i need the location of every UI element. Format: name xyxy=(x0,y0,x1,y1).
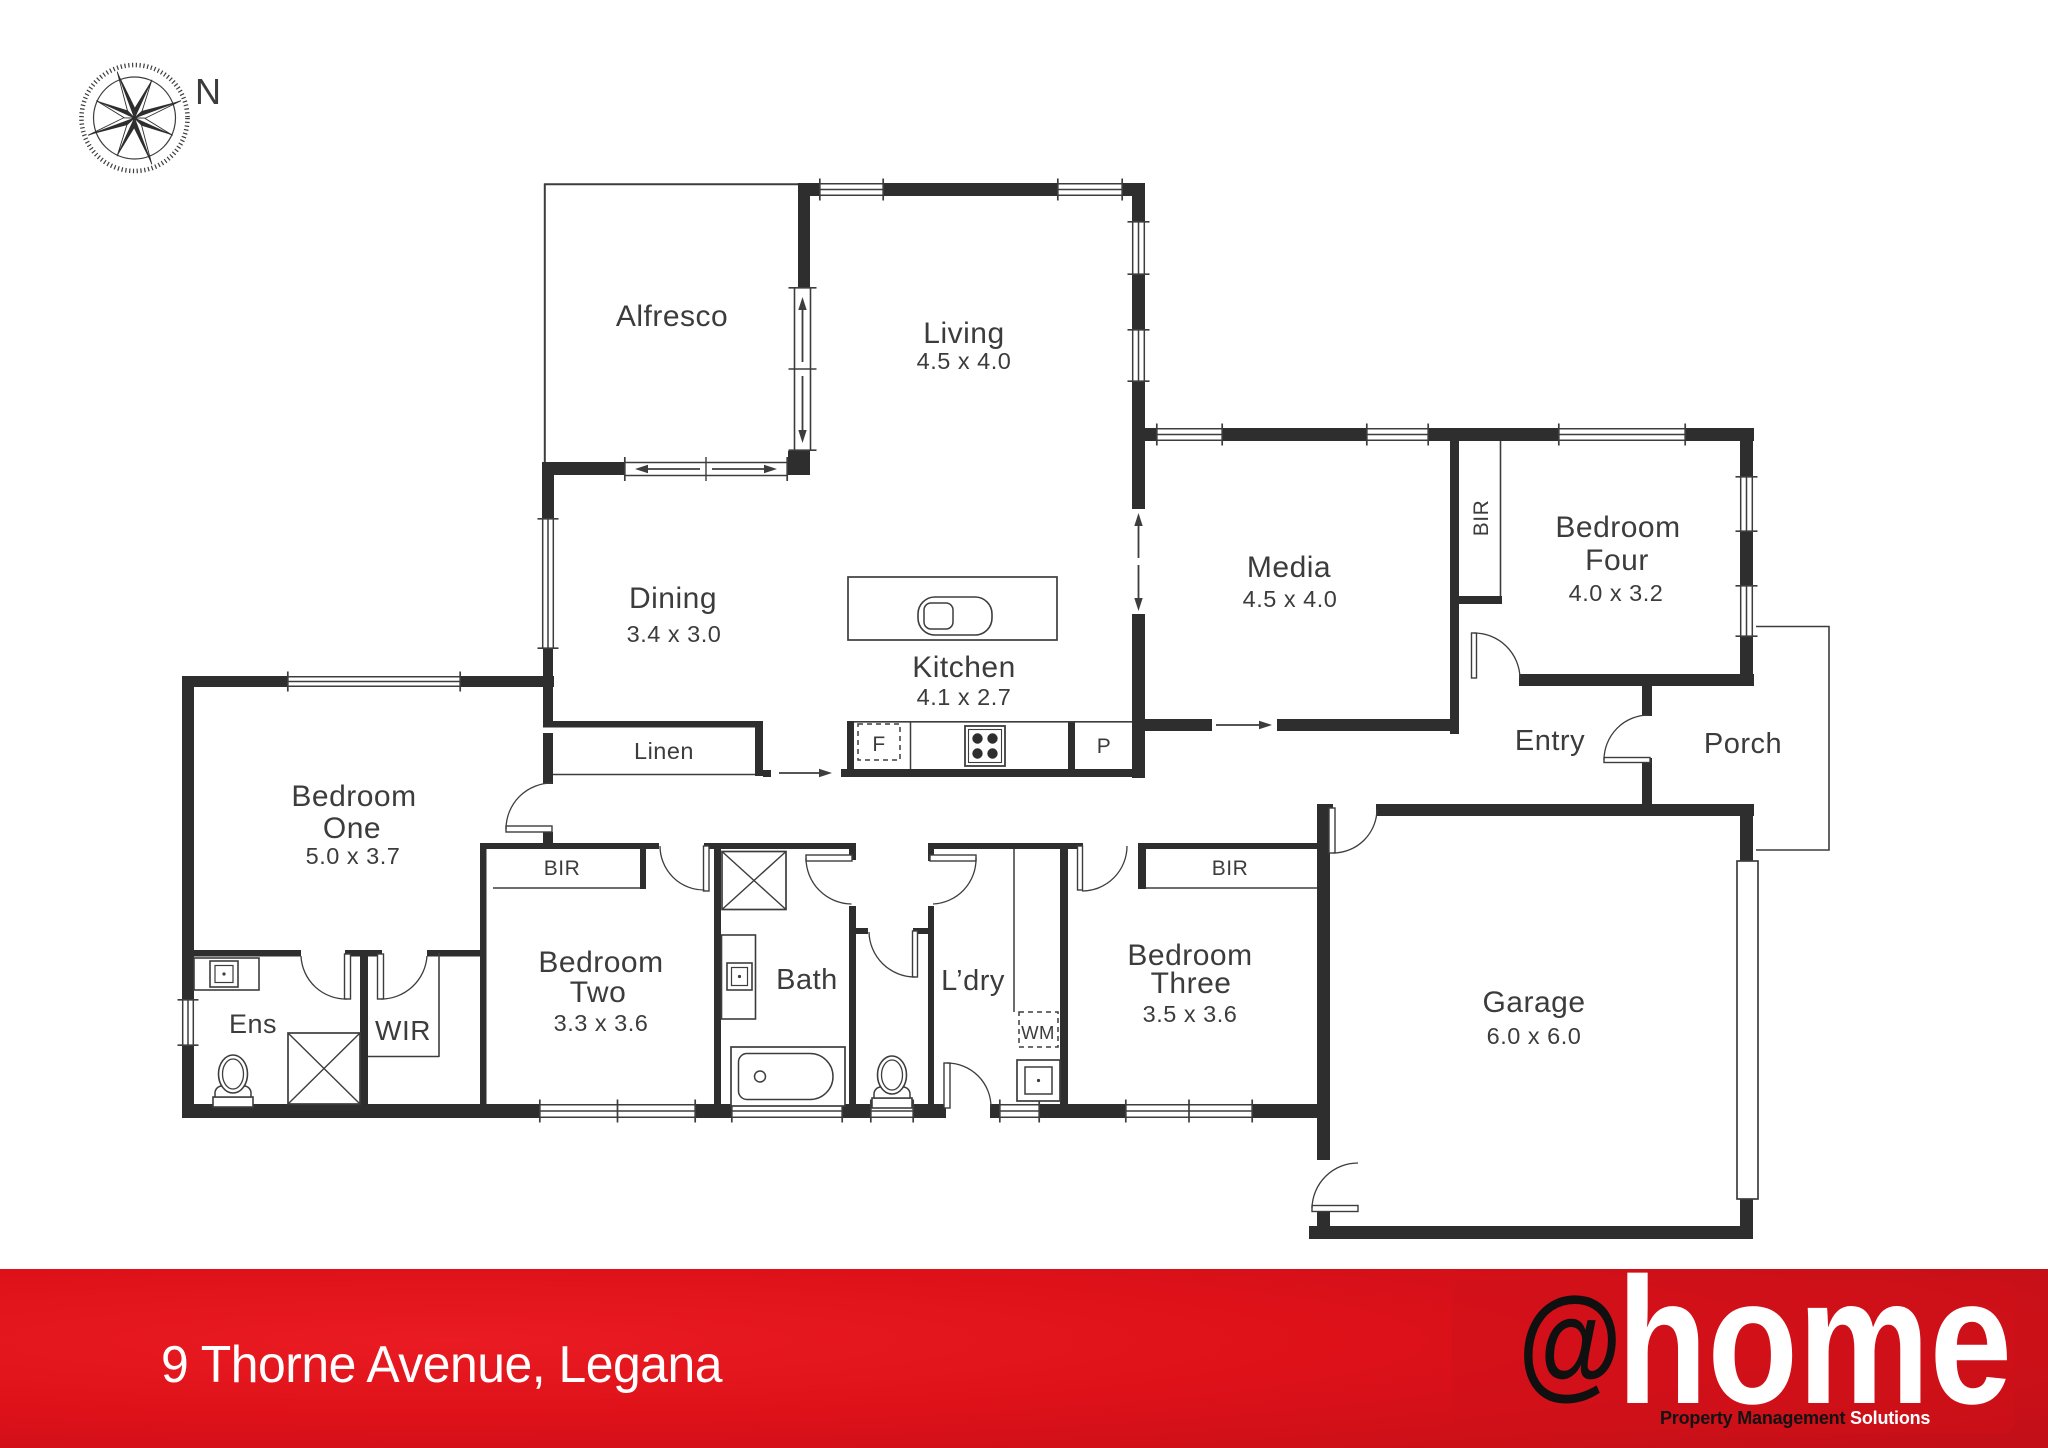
svg-text:3.5 x 3.6: 3.5 x 3.6 xyxy=(1143,1001,1238,1027)
svg-text:N: N xyxy=(195,71,221,112)
svg-text:Bedroom: Bedroom xyxy=(291,780,416,813)
svg-text:4.5 x 4.0: 4.5 x 4.0 xyxy=(917,348,1012,374)
svg-text:Property Management Solutions: Property Management Solutions xyxy=(1660,1408,1930,1428)
svg-text:L’dry: L’dry xyxy=(941,965,1005,997)
svg-text:Four: Four xyxy=(1585,544,1649,577)
svg-text:Porch: Porch xyxy=(1704,728,1782,760)
svg-text:3.3 x 3.6: 3.3 x 3.6 xyxy=(554,1010,649,1036)
svg-text:4.1 x 2.7: 4.1 x 2.7 xyxy=(917,684,1012,710)
svg-text:3.4 x 3.0: 3.4 x 3.0 xyxy=(627,621,722,647)
svg-text:Bath: Bath xyxy=(776,964,838,996)
svg-text:@: @ xyxy=(1518,1271,1622,1410)
svg-text:BIR: BIR xyxy=(544,857,581,880)
svg-text:Bedroom: Bedroom xyxy=(538,946,663,979)
svg-text:Dining: Dining xyxy=(629,582,717,615)
svg-text:One: One xyxy=(323,812,381,845)
svg-text:Two: Two xyxy=(570,976,627,1009)
svg-text:BIR: BIR xyxy=(1470,500,1493,537)
svg-text:Entry: Entry xyxy=(1515,725,1585,757)
svg-text:Three: Three xyxy=(1151,967,1232,1000)
svg-text:BIR: BIR xyxy=(1212,857,1249,880)
svg-text:4.5 x 4.0: 4.5 x 4.0 xyxy=(1243,586,1338,612)
svg-text:Bedroom: Bedroom xyxy=(1555,511,1680,544)
svg-text:Living: Living xyxy=(923,317,1004,350)
svg-text:Kitchen: Kitchen xyxy=(912,651,1016,684)
svg-text:Alfresco: Alfresco xyxy=(616,300,728,333)
svg-text:F: F xyxy=(872,733,885,756)
svg-text:4.0 x 3.2: 4.0 x 3.2 xyxy=(1569,580,1664,606)
svg-text:Linen: Linen xyxy=(634,738,694,764)
svg-text:9 Thorne Avenue, Legana: 9 Thorne Avenue, Legana xyxy=(161,1336,723,1394)
svg-text:6.0 x 6.0: 6.0 x 6.0 xyxy=(1487,1023,1582,1049)
svg-text:Ens: Ens xyxy=(229,1009,277,1039)
svg-text:WIR: WIR xyxy=(375,1015,431,1046)
svg-text:WM: WM xyxy=(1021,1022,1055,1043)
svg-text:Garage: Garage xyxy=(1482,986,1585,1019)
svg-text:Media: Media xyxy=(1247,551,1331,584)
svg-text:P: P xyxy=(1097,735,1112,758)
svg-text:5.0 x 3.7: 5.0 x 3.7 xyxy=(306,843,401,869)
